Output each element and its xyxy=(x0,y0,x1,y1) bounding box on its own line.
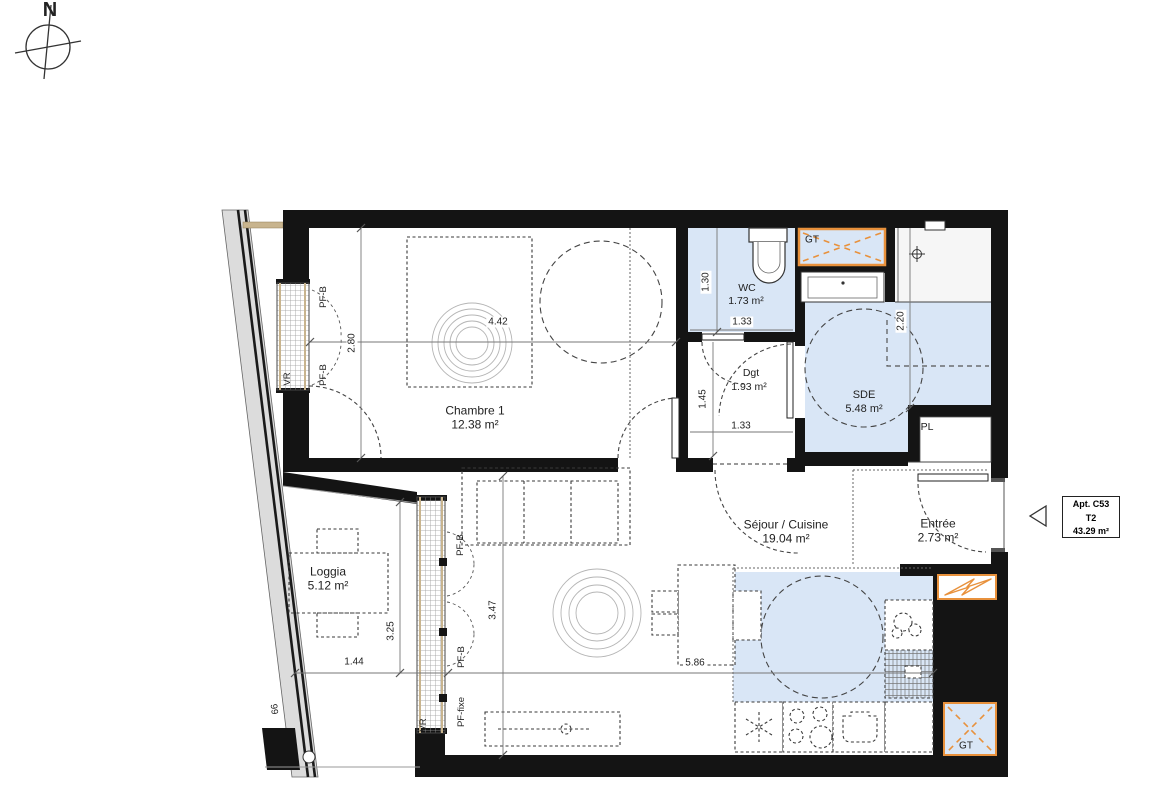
window-label-pfb-1: PF-B xyxy=(319,286,329,308)
duct-label-bottom: GT xyxy=(959,741,973,752)
compass-north-label: N xyxy=(43,0,57,21)
window-label-pf-fixe: PF-fixe xyxy=(457,697,467,727)
dim-sde-height: 2.20 xyxy=(896,309,907,332)
apartment-type: T2 xyxy=(1063,512,1119,526)
window-label-pfb-2: PF-B xyxy=(319,364,329,386)
room-area-wc: 1.73 m² xyxy=(728,296,764,308)
room-label-loggia: Loggia xyxy=(310,565,346,578)
room-area-dgt: 1.93 m² xyxy=(731,382,767,394)
room-label-sejour: Séjour / Cuisine xyxy=(744,518,829,531)
floor-plan-drawing xyxy=(0,0,1168,800)
room-label-sde: SDE xyxy=(853,389,876,401)
room-label-placard: PL xyxy=(921,422,934,434)
dim-loggia-height: 3.25 xyxy=(386,619,397,642)
dim-wc-width: 1.33 xyxy=(730,317,753,328)
shutter-label-vr-2: VR xyxy=(419,718,429,731)
room-area-sejour: 19.04 m² xyxy=(762,532,809,545)
room-area-loggia: 5.12 m² xyxy=(308,579,349,592)
window-label-pfb-4: PF-B xyxy=(457,646,467,668)
room-label-dgt: Dgt xyxy=(743,368,759,380)
electrical-panel-icon xyxy=(938,575,996,599)
apartment-area: 43.29 m² xyxy=(1063,525,1119,539)
dim-chambre-width: 4.42 xyxy=(486,317,509,328)
room-area-entree: 2.73 m² xyxy=(918,531,959,544)
dim-dgt-height: 1.45 xyxy=(698,387,709,410)
facade-mark-label: 66 xyxy=(270,703,282,715)
room-area-sde: 5.48 m² xyxy=(845,403,882,415)
apartment-number: Apt. C53 xyxy=(1063,498,1119,512)
dim-chambre-height: 2.80 xyxy=(347,331,358,354)
room-area-chambre: 12.38 m² xyxy=(451,418,498,431)
room-label-wc: WC xyxy=(738,283,756,295)
dim-loggia-width: 1.44 xyxy=(342,657,365,668)
window-swings xyxy=(312,290,474,666)
dim-wc-height: 1.30 xyxy=(701,270,712,293)
room-label-entree: Entrée xyxy=(920,517,955,530)
dim-sejour-height: 3.47 xyxy=(488,598,499,621)
shutter-label-vr-1: VR xyxy=(283,372,293,385)
dim-dgt-width: 1.33 xyxy=(729,421,752,432)
ceiling-lights xyxy=(432,303,641,657)
window-label-pfb-3: PF-B xyxy=(456,534,466,556)
direction-triangle-icon xyxy=(1030,506,1046,526)
room-label-chambre: Chambre 1 xyxy=(445,404,504,417)
apartment-tag: Apt. C53 T2 43.29 m² xyxy=(1062,496,1120,538)
dim-sejour-width: 5.86 xyxy=(683,658,706,669)
duct-label-top: GT xyxy=(805,235,819,246)
floor-plan-page: NChambre 112.38 m²WC1.73 m²Dgt1.93 m²SDE… xyxy=(0,0,1168,800)
